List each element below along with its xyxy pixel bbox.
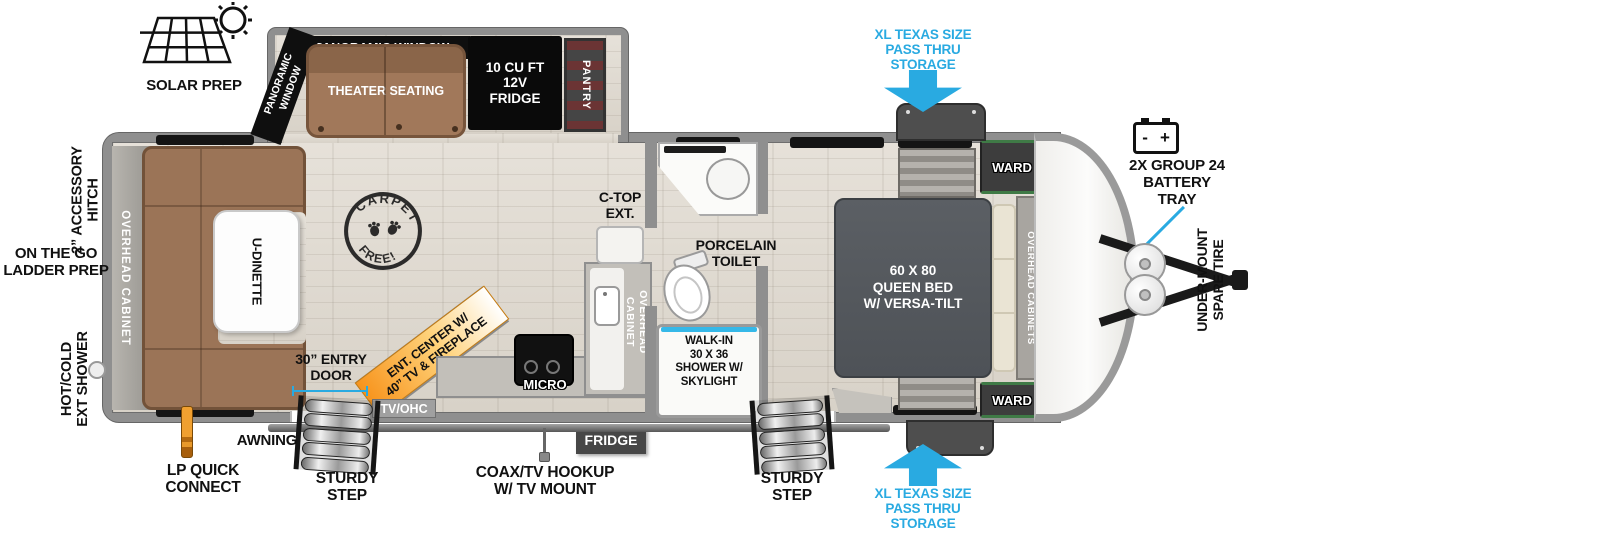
vanity-mirror [664, 146, 726, 153]
fridge-label: FRIDGE [585, 432, 638, 448]
entry-door-label: 30” ENTRY DOOR [288, 352, 374, 383]
tank-cap [1139, 289, 1151, 301]
ext-shower-label: HOT/COLD EXT SHOWER [59, 309, 97, 449]
sofa-seam [384, 47, 386, 135]
queen-bed-label: 60 X 80 QUEEN BED W/ VERSA-TILT [864, 263, 963, 314]
ctop-ext-counter [596, 226, 644, 264]
sofa-seam [145, 205, 303, 207]
sofa-seam [200, 149, 202, 407]
bath-wall [645, 142, 657, 228]
coax-antenna-icon [543, 428, 546, 454]
shower-skylight [661, 327, 757, 332]
burner-icon [524, 360, 538, 374]
tv-ohc-label: TV/OHC [380, 402, 427, 416]
ward-top-label: WARD [992, 160, 1032, 175]
kitchen-faucet [603, 292, 607, 296]
door-dimension-tick [366, 386, 368, 396]
entry-steps [294, 395, 381, 475]
battery-plus: + [1160, 128, 1170, 147]
queen-bed: 60 X 80 QUEEN BED W/ VERSA-TILT [834, 198, 992, 378]
dresser [898, 376, 976, 410]
fridge-12v-label: 10 CU FT 12V FRIDGE [486, 60, 545, 107]
battery-minus: - [1142, 128, 1147, 147]
screw-icon [906, 110, 910, 114]
window-slit [156, 135, 254, 145]
door-dimension-line [292, 390, 368, 392]
lp-quick-connect-label: LP QUICK CONNECT [150, 462, 256, 497]
rv-floorplan-canvas: PANORAMIC WINDOW PANORAMIC WINDOW THEATE… [0, 0, 1600, 537]
sofa-cupholder [396, 124, 402, 130]
pass-thru-box-top [896, 103, 986, 141]
solar-panel-sun-icon [140, 2, 255, 80]
entry-steps [750, 395, 835, 474]
hitch-coupler [1232, 270, 1248, 290]
dresser [898, 148, 976, 198]
carpet-free-stamp: CARPET FREE! [334, 182, 431, 279]
coax-tv-label: COAX/TV HOOKUP W/ TV MOUNT [460, 464, 630, 499]
micro-label: MICRO [510, 377, 580, 392]
ward-bottom-label: WARD [992, 393, 1032, 408]
bed-pillows [992, 204, 1016, 372]
pass-thru-bottom-label: XL TEXAS SIZE PASS THRU STORAGE [853, 486, 993, 531]
u-dinette-label: U-DINETTE [249, 212, 264, 332]
tank-cap [1139, 258, 1151, 270]
ladder-prep-label: ON THE GO LADDER PREP [0, 246, 112, 280]
sofa-seam [145, 348, 303, 350]
pillow-seam [994, 258, 1014, 260]
sturdy-step-left-label: STURDY STEP [305, 470, 389, 505]
window-slit [790, 137, 884, 148]
theater-seating-sofa: THEATER SEATING [306, 44, 466, 138]
bath-sink [706, 158, 750, 200]
pass-thru-top-label: XL TEXAS SIZE PASS THRU STORAGE [853, 27, 993, 72]
spare-tire-label: UNDER-MOUNT SPARE TIRE [1195, 209, 1231, 351]
fridge-12v-box: 10 CU FT 12V FRIDGE [468, 36, 562, 130]
sofa-cupholder [318, 126, 324, 132]
coax-antenna-base [539, 452, 550, 462]
theater-seating-label: THEATER SEATING [328, 84, 444, 98]
sturdy-step-right-label: STURDY STEP [750, 470, 834, 505]
pantry-label: PANTRY [578, 40, 592, 130]
lp-quick-connect-icon [181, 406, 193, 458]
kitchen-sink [594, 286, 620, 326]
burner-icon [546, 360, 560, 374]
awning-label: AWNING [228, 433, 306, 450]
screw-icon [980, 446, 984, 450]
battery-tray-label: 2X GROUP 24 BATTERY TRAY [1107, 158, 1247, 208]
sofa-cupholder [452, 126, 458, 132]
screw-icon [972, 110, 976, 114]
battery-icon: - + [1133, 122, 1179, 154]
tv-ohc-cabinet: TV/OHC [372, 399, 436, 418]
pillow-seam [994, 312, 1014, 314]
solar-prep-label: SOLAR PREP [134, 78, 254, 95]
door-dimension-tick [292, 386, 294, 396]
rear-overhead-cabinet-label: OVERHEAD CABINET [117, 158, 131, 398]
paw-print-icon [365, 214, 403, 243]
shower-label: WALK-IN 30 X 36 SHOWER W/ SKYLIGHT [658, 335, 760, 389]
